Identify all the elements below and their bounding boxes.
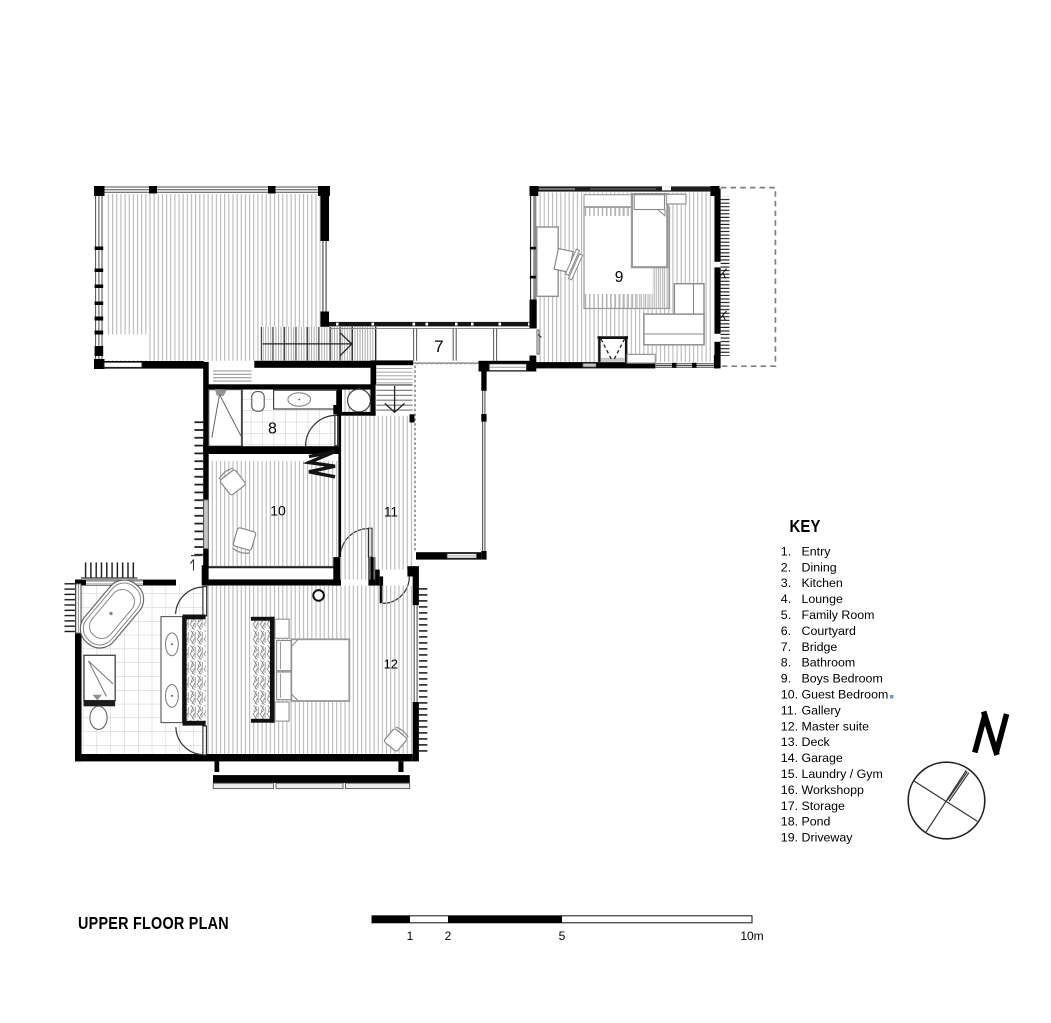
svg-text:Guest Bedroom: Guest Bedroom bbox=[802, 688, 889, 702]
svg-text:4.: 4. bbox=[781, 592, 791, 606]
svg-text:Storage: Storage bbox=[802, 799, 846, 813]
svg-text:Bridge: Bridge bbox=[802, 640, 838, 654]
svg-text:5: 5 bbox=[559, 929, 566, 943]
svg-text:7: 7 bbox=[434, 337, 443, 356]
svg-text:10m: 10m bbox=[740, 929, 763, 943]
svg-text:2.: 2. bbox=[781, 560, 791, 574]
svg-text:12: 12 bbox=[384, 656, 398, 671]
svg-text:9: 9 bbox=[615, 269, 624, 286]
svg-text:Dining: Dining bbox=[802, 560, 837, 574]
svg-text:Entry: Entry bbox=[802, 544, 832, 558]
svg-text:Deck: Deck bbox=[802, 735, 831, 749]
svg-text:18.: 18. bbox=[781, 815, 798, 829]
svg-text:Kitchen: Kitchen bbox=[802, 576, 843, 590]
svg-text:12.: 12. bbox=[781, 719, 798, 733]
svg-text:7.: 7. bbox=[781, 640, 791, 654]
svg-text:UPPER FLOOR PLAN: UPPER FLOOR PLAN bbox=[78, 913, 229, 933]
svg-text:Master suite: Master suite bbox=[802, 719, 870, 733]
svg-text:8: 8 bbox=[268, 421, 277, 438]
svg-text:1.: 1. bbox=[781, 544, 791, 558]
svg-text:13.: 13. bbox=[781, 735, 798, 749]
svg-text:Lounge: Lounge bbox=[802, 592, 843, 606]
svg-text:Garage: Garage bbox=[802, 751, 843, 765]
svg-text:14.: 14. bbox=[781, 751, 798, 765]
svg-text:10.: 10. bbox=[781, 688, 798, 702]
svg-text:11.: 11. bbox=[781, 703, 797, 717]
svg-text:Pond: Pond bbox=[802, 815, 831, 829]
svg-text:8.: 8. bbox=[781, 656, 791, 670]
svg-text:1: 1 bbox=[407, 929, 414, 943]
svg-text:Bathroom: Bathroom bbox=[802, 656, 856, 670]
svg-text:15.: 15. bbox=[781, 767, 798, 781]
svg-text:Boys Bedroom: Boys Bedroom bbox=[802, 672, 883, 686]
svg-text:Workshopp: Workshopp bbox=[802, 783, 865, 797]
svg-text:Courtyard: Courtyard bbox=[802, 624, 857, 638]
svg-text:17.: 17. bbox=[781, 799, 798, 813]
svg-text:6.: 6. bbox=[781, 624, 791, 638]
svg-text:3.: 3. bbox=[781, 576, 791, 590]
svg-text:9.: 9. bbox=[781, 672, 791, 686]
svg-text:Gallery: Gallery bbox=[802, 703, 842, 717]
svg-text:Driveway: Driveway bbox=[802, 831, 854, 845]
svg-text:2: 2 bbox=[445, 929, 452, 943]
svg-text:19.: 19. bbox=[781, 831, 798, 845]
svg-text:Family Room: Family Room bbox=[802, 608, 875, 622]
svg-text:5.: 5. bbox=[781, 608, 791, 622]
svg-text:10: 10 bbox=[270, 503, 286, 519]
svg-text:Laundry / Gym: Laundry / Gym bbox=[802, 767, 883, 781]
svg-text:16.: 16. bbox=[781, 783, 798, 797]
svg-text:KEY: KEY bbox=[790, 517, 821, 536]
svg-text:11: 11 bbox=[384, 504, 398, 519]
